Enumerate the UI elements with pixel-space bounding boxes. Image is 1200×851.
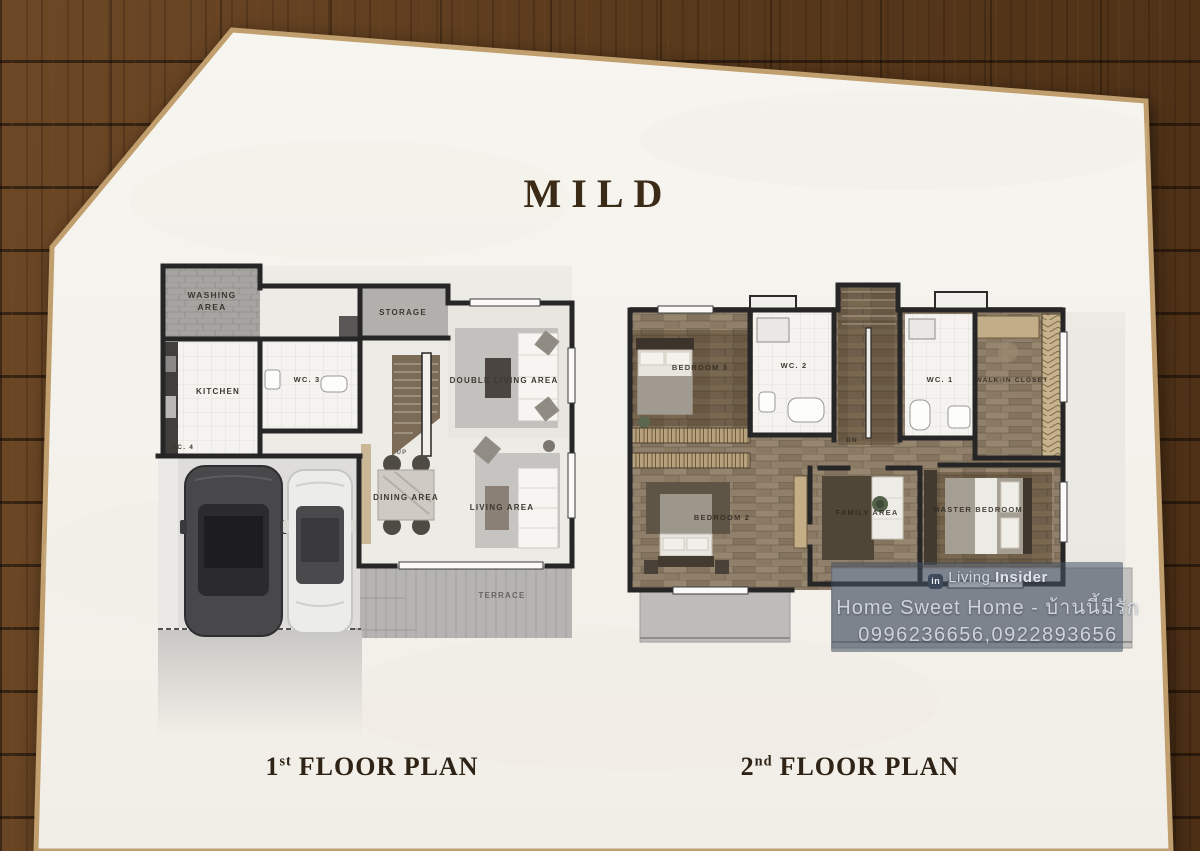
brand-name-bold: Insider: [995, 569, 1048, 586]
shower: [757, 318, 789, 342]
toilet: [910, 400, 930, 430]
plan-title: MILD: [478, 170, 718, 217]
sedan-car: [283, 470, 357, 633]
double-living-label: DOUBLE LIVING AREA: [450, 376, 559, 385]
nightstand: [644, 560, 658, 574]
toilet: [759, 392, 775, 412]
master-label: MASTER BEDROOM: [933, 505, 1023, 514]
sideboard: [361, 444, 371, 544]
pouf: [998, 342, 1018, 362]
nightstand: [715, 560, 729, 574]
desk: [794, 476, 807, 548]
dn-label: DN: [846, 437, 858, 444]
garage: [158, 456, 362, 735]
watermark-phones: 0996236656,0922893656: [828, 624, 1148, 647]
window-bay: [935, 292, 987, 310]
first-floor-caption: 1stFLOOR PLAN: [252, 752, 492, 782]
stairwell-down: DN: [838, 285, 900, 445]
bed: [945, 478, 1032, 554]
poster-background: MILD WASHING A: [0, 0, 1200, 851]
side-table: [543, 440, 555, 452]
stair-railing: [866, 328, 871, 438]
wardrobe: [632, 453, 750, 468]
rug: [822, 476, 874, 560]
room-dining: DINING AREA: [360, 438, 460, 566]
brand-name-light: Living: [948, 569, 990, 586]
dining-label: DINING AREA: [373, 493, 439, 502]
room-wc2: WC. 2: [753, 312, 834, 435]
second-floor-caption: 2ndFLOOR PLAN: [730, 752, 970, 782]
walkin-label: WALK-IN CLOSET: [976, 377, 1049, 384]
plant: [638, 416, 650, 428]
bed: [636, 338, 694, 414]
shower: [909, 319, 935, 339]
brand-logo-icon: in: [928, 574, 943, 589]
brand-line: inLiving Insider: [828, 569, 1148, 589]
washing-area-label2: AREA: [198, 302, 227, 312]
caption-text: FLOOR PLAN: [780, 752, 960, 781]
shelving: [1042, 314, 1062, 456]
caption-ordinal: nd: [755, 753, 773, 769]
kitchen-label: KITCHEN: [196, 387, 240, 396]
caption-number: 2: [741, 752, 755, 781]
wc2-label: WC. 2: [781, 361, 808, 370]
watermark-tagline: Home Sweet Home - บ้านนี้มีรัก: [828, 591, 1148, 623]
room-washing-area: WASHING AREA: [163, 266, 260, 339]
caption-number: 1: [265, 752, 279, 781]
room-kitchen: KITCHEN WC. 4: [163, 339, 260, 456]
bed: [658, 494, 714, 567]
sink: [948, 406, 970, 428]
terrace-label: TERRACE: [478, 591, 525, 600]
room-walkin-closet: WALK-IN CLOSET: [975, 310, 1063, 458]
family-label: FAMILY AREA: [836, 508, 899, 517]
wardrobe: [924, 470, 937, 565]
wc1-label: WC. 1: [927, 375, 954, 384]
shower: [339, 316, 358, 339]
room-double-living: DOUBLE LIVING AREA: [448, 303, 572, 438]
first-floor-plan: WASHING AREA KITCHEN WC. 4 WC. 3 STORAGE: [155, 258, 585, 745]
room-wc1: WC. 1: [905, 314, 975, 438]
room-terrace: TERRACE: [355, 566, 572, 638]
living-label: LIVING AREA: [470, 503, 534, 512]
cabinet: [975, 316, 1039, 338]
walkway: [158, 456, 178, 628]
room-bedroom3: BEDROOM 3: [632, 330, 750, 428]
sink: [265, 370, 280, 389]
caption-ordinal: st: [279, 753, 291, 769]
storage-label: STORAGE: [379, 308, 427, 317]
watermark: inLiving Insider Home Sweet Home - บ้านน…: [828, 569, 1148, 647]
wc4-label: WC. 4: [170, 444, 194, 451]
suv-car: [180, 466, 287, 636]
room-storage: STORAGE: [360, 286, 448, 338]
wc3-label: WC. 3: [294, 375, 321, 384]
bedroom3-label: BEDROOM 3: [672, 363, 728, 372]
toilet: [321, 376, 347, 392]
bathtub: [788, 398, 824, 422]
caption-text: FLOOR PLAN: [299, 752, 479, 781]
side-roof: [1065, 312, 1125, 584]
washing-area-label: WASHING: [187, 290, 236, 300]
bedroom2-label: BEDROOM 2: [694, 513, 750, 522]
wardrobe: [632, 428, 750, 443]
balcony-left: [640, 592, 790, 642]
room-master-bedroom: MASTER BEDROOM: [924, 470, 1052, 565]
driveway: [158, 630, 362, 735]
